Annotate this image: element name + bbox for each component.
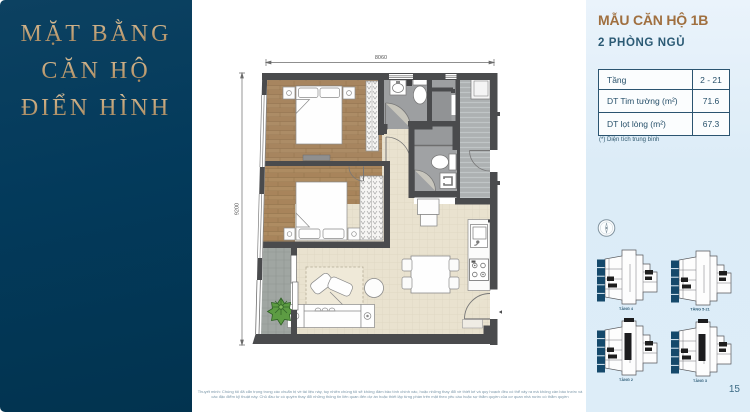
svg-text:TẦNG 5-21: TẦNG 5-21	[690, 308, 709, 312]
svg-text:8060: 8060	[375, 55, 387, 61]
svg-text:TẦNG 4: TẦNG 4	[619, 307, 634, 311]
svg-text:TẦNG 2: TẦNG 2	[619, 378, 633, 382]
svg-text:TẦNG 3: TẦNG 3	[693, 379, 707, 383]
svg-text:9200: 9200	[235, 203, 241, 215]
